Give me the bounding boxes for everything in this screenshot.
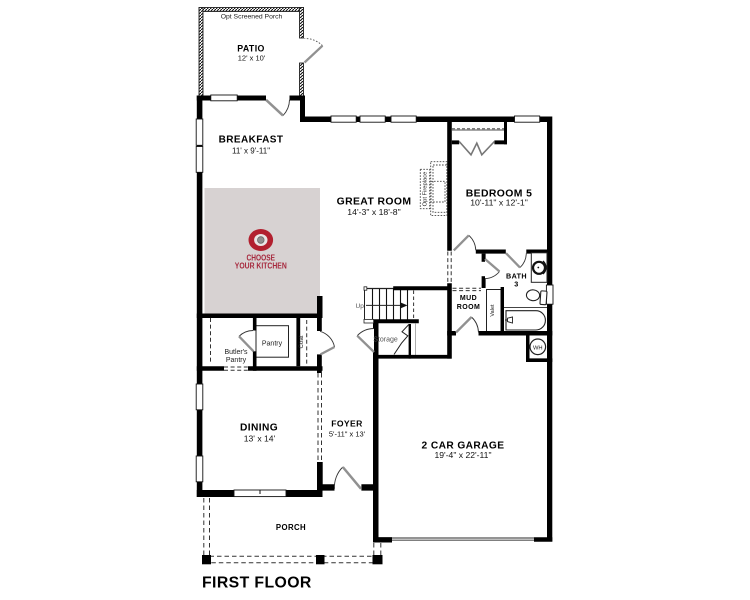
svg-text:Opt Fireplace: Opt Fireplace (423, 172, 429, 207)
svg-text:FOYER: FOYER (331, 419, 363, 429)
svg-text:12' x 10': 12' x 10' (238, 54, 266, 63)
svg-text:PORCH: PORCH (276, 523, 306, 532)
svg-text:19'-4" x 22'-11": 19'-4" x 22'-11" (435, 450, 492, 460)
svg-text:Opt Screened Porch: Opt Screened Porch (221, 14, 283, 21)
svg-text:FIRST FLOOR: FIRST FLOOR (202, 575, 312, 592)
svg-text:Pantry: Pantry (226, 357, 247, 364)
svg-text:BREAKFAST: BREAKFAST (219, 135, 284, 146)
svg-text:3: 3 (514, 280, 518, 289)
svg-text:Up: Up (356, 303, 365, 310)
svg-text:ROOM: ROOM (457, 304, 480, 311)
svg-text:13' x 14': 13' x 14' (244, 434, 276, 444)
svg-text:WH: WH (533, 345, 543, 351)
svg-text:11' x 9'-11": 11' x 9'-11" (232, 147, 270, 156)
svg-text:PATIO: PATIO (237, 44, 265, 54)
svg-text:Storage: Storage (373, 337, 398, 344)
svg-text:YOUR KITCHEN: YOUR KITCHEN (235, 262, 287, 271)
svg-text:Pantry: Pantry (262, 341, 283, 348)
svg-text:5'-11" x 13': 5'-11" x 13' (329, 430, 366, 439)
svg-text:Valet: Valet (490, 304, 496, 317)
svg-text:Coat: Coat (298, 335, 305, 348)
svg-text:10'-11" x 12'-1": 10'-11" x 12'-1" (470, 198, 528, 208)
svg-text:Butler's: Butler's (224, 349, 248, 356)
svg-text:DINING: DINING (240, 423, 278, 434)
svg-text:14'-3" x 18'-8": 14'-3" x 18'-8" (347, 207, 400, 217)
svg-text:MUD: MUD (460, 295, 477, 302)
